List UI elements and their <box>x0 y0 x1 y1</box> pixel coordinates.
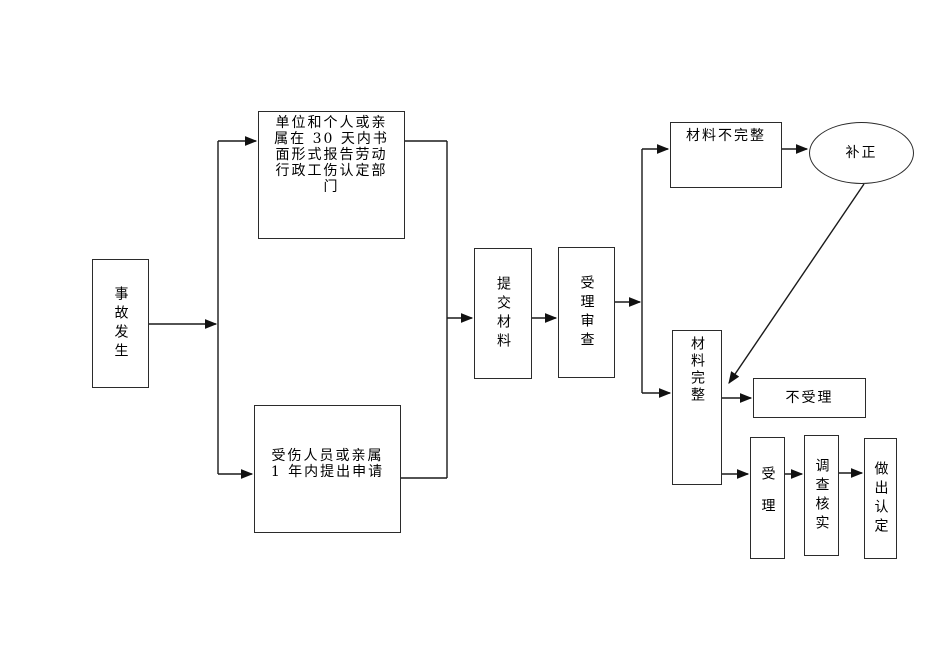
node-accident-label: 事故发生 <box>114 286 128 362</box>
node-acceptance-review: 受理审查 <box>558 247 615 378</box>
node-not-accepted: 不受理 <box>753 378 866 418</box>
flowchart-canvas: 事故发生 单位和个人或亲 属在 30 天内书 面形式报告劳动 行政工伤认定部 门… <box>0 0 950 672</box>
node-submit-materials-label: 提交材料 <box>496 276 510 352</box>
node-investigate-verify: 调查核实 <box>804 435 839 556</box>
node-submit-materials: 提交材料 <box>474 248 532 379</box>
node-acceptance-review-label: 受理审查 <box>580 275 594 351</box>
node-unit-report: 单位和个人或亲 属在 30 天内书 面形式报告劳动 行政工伤认定部 门 <box>258 111 405 239</box>
node-supplement: 补正 <box>809 122 914 184</box>
node-accept-label: 受理 <box>761 466 775 530</box>
node-make-determination-label: 做出认定 <box>874 461 888 537</box>
node-supplement-label: 补正 <box>846 145 878 161</box>
node-accept: 受理 <box>750 437 785 559</box>
node-investigate-verify-label: 调查核实 <box>815 458 829 534</box>
node-injured-apply: 受伤人员或亲属 1 年内提出申请 <box>254 405 401 533</box>
node-materials-complete-label: 材料完整 <box>690 331 704 404</box>
node-accident: 事故发生 <box>92 259 149 388</box>
node-materials-incomplete-label: 材料不完整 <box>686 123 766 144</box>
node-materials-complete: 材料完整 <box>672 330 722 485</box>
node-not-accepted-label: 不受理 <box>786 390 834 406</box>
node-unit-report-label: 单位和个人或亲 属在 30 天内书 面形式报告劳动 行政工伤认定部 门 <box>274 112 389 195</box>
node-materials-incomplete: 材料不完整 <box>670 122 782 188</box>
edge-supplement-to-complete <box>729 184 864 383</box>
node-injured-apply-label: 受伤人员或亲属 1 年内提出申请 <box>271 448 384 490</box>
node-make-determination: 做出认定 <box>864 438 897 559</box>
